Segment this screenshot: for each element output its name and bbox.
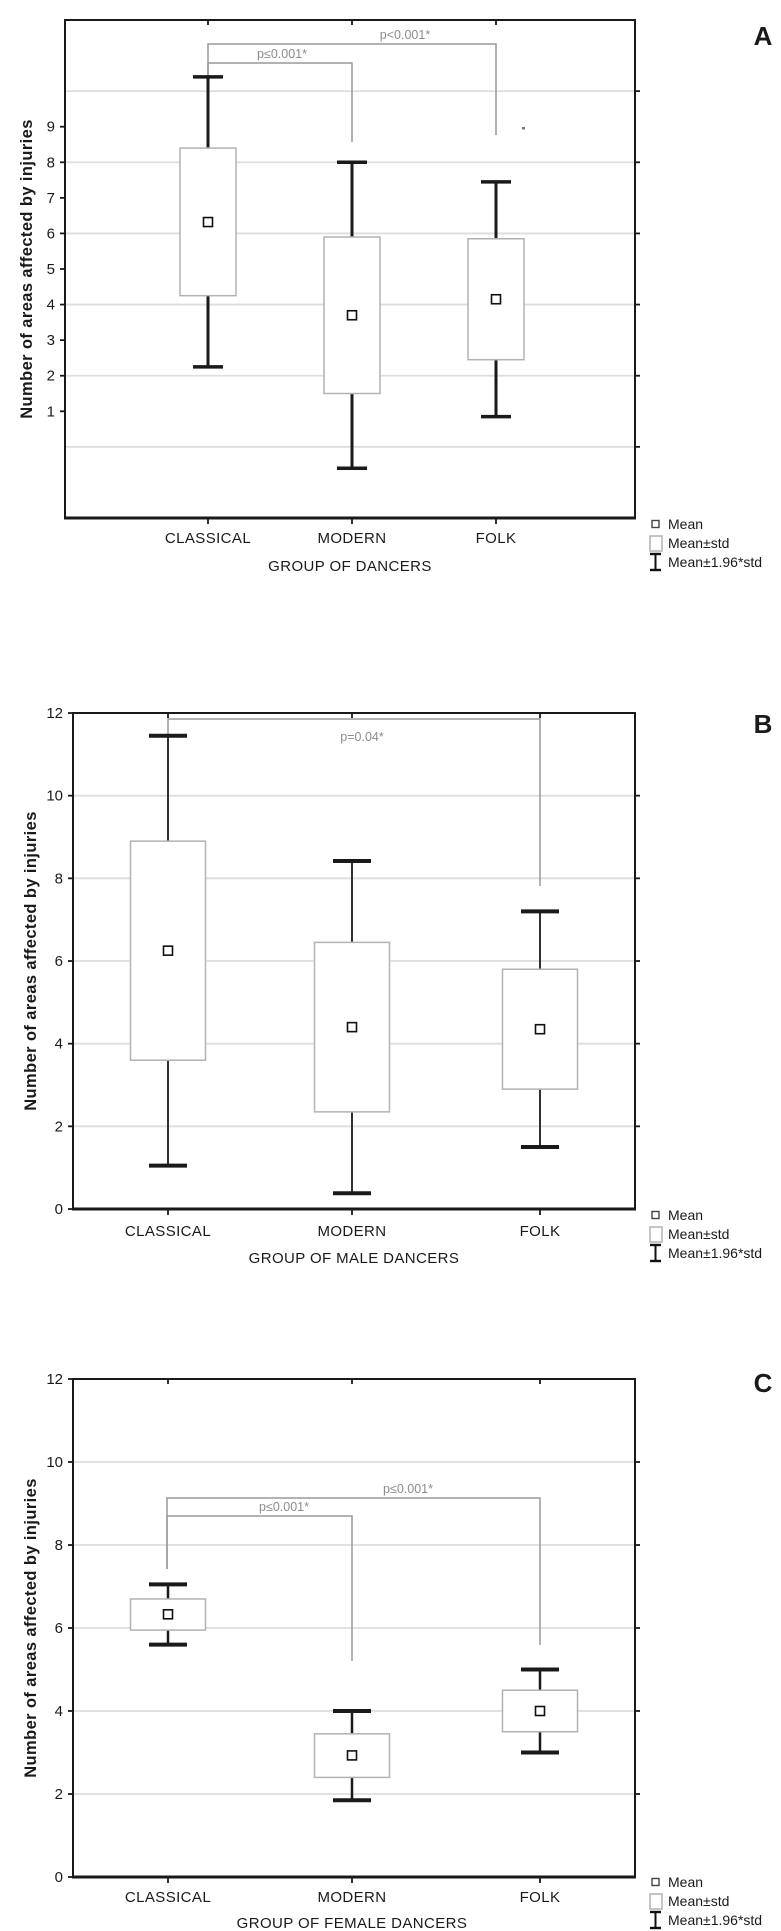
legend-label: Mean±std (668, 1893, 729, 1909)
p-value-label: p=0.04* (340, 730, 384, 744)
panel-b: p=0.04*024681012CLASSICALMODERNFOLKGROUP… (22, 705, 772, 1267)
legend-label: Mean (668, 1207, 703, 1223)
x-category-label: CLASSICAL (125, 1889, 211, 1906)
x-category-label: MODERN (317, 530, 386, 547)
significance-bracket (208, 63, 352, 142)
x-category-label: FOLK (520, 1889, 561, 1906)
significance-bracket (167, 1498, 540, 1645)
x-category-label: CLASSICAL (165, 530, 251, 547)
legend-label: Mean (668, 516, 703, 532)
y-tick-label: 4 (47, 297, 55, 314)
x-category-label: FOLK (520, 1223, 561, 1240)
p-value-label: p≤0.001* (257, 47, 307, 61)
mean-square-icon (652, 1879, 659, 1886)
mean-marker-classical (164, 946, 173, 955)
y-tick-label: 2 (55, 1118, 63, 1135)
legend: MeanMean±stdMean±1.96*std (650, 516, 762, 570)
legend: MeanMean±stdMean±1.96*std (650, 1207, 762, 1261)
y-tick-label: 9 (47, 119, 55, 136)
y-tick-label: 10 (46, 788, 63, 805)
y-tick-label: 8 (47, 154, 55, 171)
y-axis-title: Number of areas affected by injuries (22, 1478, 40, 1778)
panel-letter-c: C (754, 1368, 773, 1398)
figure-page: p≤0.001*p<0.001*123456789CLASSICALMODERN… (0, 0, 781, 1931)
y-tick-label: 3 (47, 332, 55, 349)
y-tick-label: 12 (46, 705, 63, 722)
y-tick-label: 4 (55, 1703, 63, 1720)
y-tick-label: 1 (47, 403, 55, 420)
y-tick-label: 0 (55, 1869, 63, 1886)
y-tick-label: 10 (46, 1454, 63, 1471)
y-tick-label: 8 (55, 870, 63, 887)
y-tick-label: 2 (47, 368, 55, 385)
mean-square-icon (652, 1212, 659, 1219)
legend-label: Mean±1.96*std (668, 554, 762, 570)
significance-bracket (167, 1516, 352, 1661)
mean-marker-folk (536, 1025, 545, 1034)
x-axis-title: GROUP OF MALE DANCERS (249, 1250, 460, 1267)
mean-marker-folk (492, 295, 501, 304)
std-box-icon (650, 536, 662, 551)
legend-label: Mean±1.96*std (668, 1912, 762, 1928)
mean-square-icon (652, 521, 659, 528)
y-axis-title: Number of areas affected by injuries (22, 811, 40, 1111)
y-tick-label: 0 (55, 1201, 63, 1218)
y-tick-label: 12 (46, 1371, 63, 1388)
y-tick-label: 2 (55, 1786, 63, 1803)
legend-label: Mean±1.96*std (668, 1245, 762, 1261)
panel-letter-b: B (754, 709, 773, 739)
y-tick-label: 4 (55, 1036, 63, 1053)
y-tick-label: 6 (55, 1620, 63, 1637)
x-category-label: MODERN (317, 1889, 386, 1906)
legend-label: Mean (668, 1874, 703, 1890)
mean-marker-modern (348, 1023, 357, 1032)
mean-marker-modern (348, 1751, 357, 1760)
y-tick-label: 5 (47, 261, 55, 278)
y-tick-label: 6 (47, 225, 55, 242)
legend-label: Mean±std (668, 1226, 729, 1242)
y-tick-label: 6 (55, 953, 63, 970)
panel-c: p≤0.001*p≤0.001*024681012CLASSICALMODERN… (22, 1368, 773, 1931)
y-axis-title: Number of areas affected by injuries (18, 119, 36, 419)
panel-a: p≤0.001*p<0.001*123456789CLASSICALMODERN… (18, 20, 773, 575)
mean-marker-modern (348, 311, 357, 320)
legend-label: Mean±std (668, 535, 729, 551)
stray-mark (522, 127, 525, 130)
mean-marker-folk (536, 1707, 545, 1716)
x-axis-title: GROUP OF DANCERS (268, 558, 432, 575)
x-category-label: MODERN (317, 1223, 386, 1240)
x-axis-title: GROUP OF FEMALE DANCERS (237, 1915, 468, 1931)
boxplot-figure: p≤0.001*p<0.001*123456789CLASSICALMODERN… (0, 0, 781, 1931)
legend: MeanMean±stdMean±1.96*std (650, 1874, 762, 1928)
x-category-label: FOLK (476, 530, 517, 547)
y-tick-label: 8 (55, 1537, 63, 1554)
mean-marker-classical (164, 1610, 173, 1619)
x-category-label: CLASSICAL (125, 1223, 211, 1240)
p-value-label: p<0.001* (380, 28, 431, 42)
std-box-icon (650, 1894, 662, 1909)
p-value-label: p≤0.001* (259, 1500, 309, 1514)
y-tick-label: 7 (47, 190, 55, 207)
std-box-icon (650, 1227, 662, 1242)
panel-letter-a: A (754, 21, 773, 51)
p-value-label: p≤0.001* (383, 1482, 433, 1496)
mean-marker-classical (204, 218, 213, 227)
